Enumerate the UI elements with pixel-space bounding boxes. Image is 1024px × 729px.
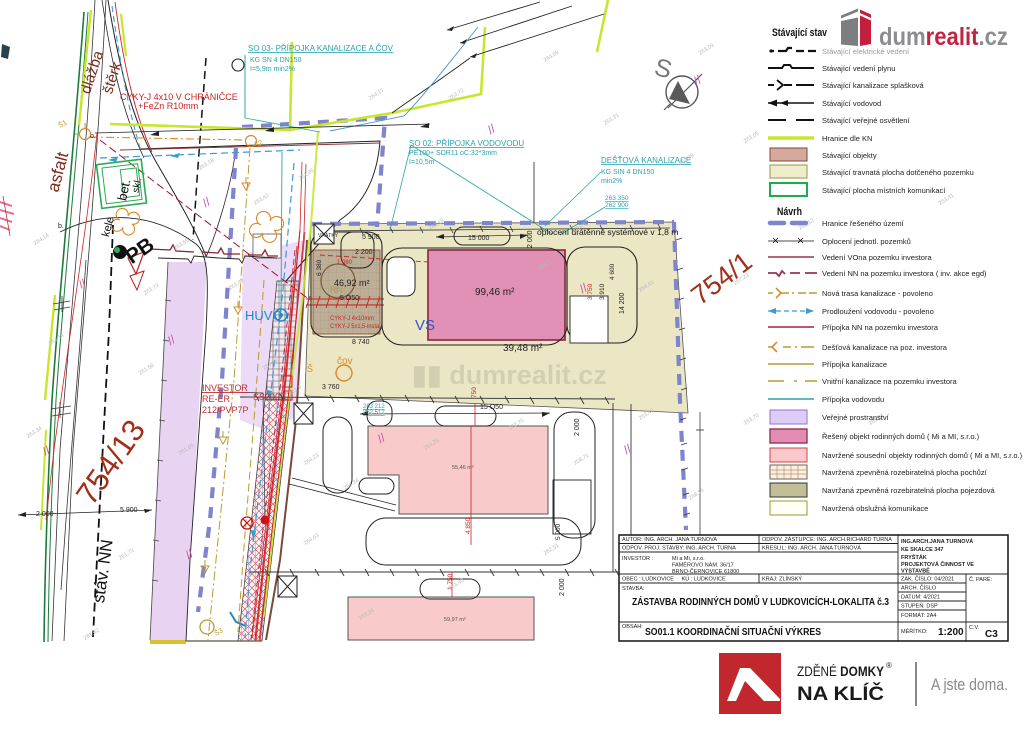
svg-text:RE-ER: RE-ER — [202, 394, 231, 404]
svg-text:dumrealit.cz: dumrealit.cz — [879, 23, 1008, 51]
svg-text:SS200: SS200 — [253, 392, 280, 402]
svg-text:99,46 m²: 99,46 m² — [475, 287, 515, 298]
svg-text:Č. PARÉ:: Č. PARÉ: — [969, 576, 993, 583]
svg-text:Nová trasa kanalizace - povole: Nová trasa kanalizace - povoleno — [822, 289, 933, 298]
svg-text:262 512: 262 512 — [363, 410, 385, 416]
svg-text:Mi a Mi, s.r.o.: Mi a Mi, s.r.o. — [672, 556, 705, 562]
svg-text:Přípojka NN na pozemku investo: Přípojka NN na pozemku investora — [822, 323, 939, 332]
svg-text:min2%: min2% — [601, 178, 622, 185]
svg-text:INVESTOR: INVESTOR — [202, 383, 248, 393]
svg-text:oplocení drátěnné systémové v: oplocení drátěnné systémové v 1,8 m — [537, 227, 678, 237]
svg-text:Stávající objekty: Stávající objekty — [822, 151, 877, 160]
svg-text:Oplocení jednotl. pozemků: Oplocení jednotl. pozemků — [822, 237, 911, 246]
svg-text:A jste doma.: A jste doma. — [931, 676, 1008, 694]
svg-text:ZDĚNÉ DOMKY: ZDĚNÉ DOMKY — [797, 664, 884, 679]
svg-text:Řešený objekt rodinných domů (: Řešený objekt rodinných domů ( Mi a MI, … — [822, 432, 980, 441]
svg-text:VÝSTAVBĚ: VÝSTAVBĚ — [901, 567, 930, 575]
svg-text:3 760: 3 760 — [322, 384, 340, 391]
svg-text:Stávající veřejné osvětlení: Stávající veřejné osvětlení — [822, 116, 910, 125]
svg-text:59,97 m²: 59,97 m² — [444, 617, 466, 623]
svg-text:čov: čov — [337, 356, 353, 367]
svg-text:ZAK. ČÍSLO: 04/2021: ZAK. ČÍSLO: 04/2021 — [901, 576, 954, 583]
svg-text:2 000: 2 000 — [559, 578, 566, 596]
svg-text:14 200: 14 200 — [619, 292, 626, 314]
svg-text:KE SKALCE 347: KE SKALCE 347 — [901, 547, 944, 553]
svg-text:Hranice řešeného území: Hranice řešeného území — [822, 219, 905, 228]
svg-text:ARCH. ČÍSLO: ARCH. ČÍSLO — [901, 585, 937, 592]
svg-text:15 O50: 15 O50 — [480, 404, 503, 411]
svg-text:DEŠŤOVÁ KANALIZACE: DEŠŤOVÁ KANALIZACE — [601, 156, 691, 165]
svg-text:ZÁSTAVBA RODINNÝCH DOMŮ V LUDK: ZÁSTAVBA RODINNÝCH DOMŮ V LUDKOVICÍCH-LO… — [632, 594, 889, 608]
svg-text:Návrh: Návrh — [777, 206, 802, 218]
svg-text:ING.ARCH.JANA TURNOVÁ: ING.ARCH.JANA TURNOVÁ — [901, 538, 973, 545]
svg-text:RN: RN — [330, 285, 343, 295]
svg-text:KRAJ: ZLÍNSKÝ: KRAJ: ZLÍNSKÝ — [762, 576, 802, 583]
svg-text:OBEC : LUDKOVICE KÚ : LUDK: OBEC : LUDKOVICE KÚ : LUDKOVICE — [622, 576, 726, 583]
svg-text:8 740: 8 740 — [352, 339, 370, 346]
svg-text:SO 03- PŘÍPOJKA KANALIZACE A Č: SO 03- PŘÍPOJKA KANALIZACE A ČOV — [248, 44, 394, 53]
svg-text:5 900: 5 900 — [120, 507, 138, 514]
svg-text:OBSAH:: OBSAH: — [622, 624, 643, 630]
svg-text:212/PVP7P: 212/PVP7P — [202, 405, 249, 415]
svg-text:2 000: 2 000 — [36, 511, 54, 518]
svg-text:Přípojka vodovodu: Přípojka vodovodu — [822, 395, 884, 404]
svg-text:750: 750 — [471, 387, 478, 398]
svg-text:I=10,5m: I=10,5m — [409, 159, 435, 166]
svg-text:Navržené sousední objekty ro: Navržené sousední objekty rodinných domů… — [822, 451, 1023, 460]
svg-text:55,46 m²: 55,46 m² — [452, 465, 474, 471]
svg-text:Navržená zpevněná rozebirateln: Navržená zpevněná rozebiratelná plocha p… — [822, 468, 988, 477]
svg-text:5 O50: 5 O50 — [340, 295, 359, 302]
svg-text:NA KLÍČ: NA KLÍČ — [797, 683, 884, 705]
svg-text:2 000: 2 000 — [574, 418, 581, 436]
svg-text:39,48 m²: 39,48 m² — [503, 343, 543, 354]
svg-text:5 900: 5 900 — [362, 234, 380, 241]
svg-text:HUVO: HUVO — [245, 308, 283, 323]
svg-text:Navržaná zpevněná rozebirateln: Navržaná zpevněná rozebiratelná plocha p… — [822, 486, 995, 495]
svg-text:b.: b. — [58, 223, 64, 230]
svg-text:263 350: 263 350 — [605, 195, 629, 202]
svg-text:Stávající travnatá plocha dotč: Stávající travnatá plocha dotčeného poze… — [822, 168, 974, 177]
svg-text:INVESTOR :: INVESTOR : — [622, 556, 654, 562]
svg-text:AUTOR: ING. ARCH. JANA TURNOVA: AUTOR: ING. ARCH. JANA TURNOVA — [622, 537, 717, 543]
svg-text:STAVBA:: STAVBA: — [622, 586, 645, 592]
svg-text:Š: Š — [307, 364, 313, 374]
svg-text:I=5,9m min2%: I=5,9m min2% — [250, 66, 295, 73]
svg-text:Stávající kanalizace splašková: Stávající kanalizace splašková — [822, 81, 925, 90]
svg-text:FORMÁT: 2A4: FORMÁT: 2A4 — [901, 612, 936, 619]
svg-text:C.V.: C.V. — [969, 625, 980, 631]
svg-text:®: ® — [886, 661, 892, 670]
svg-text:Navržená obslužná komunikace: Navržená obslužná komunikace — [822, 504, 928, 513]
svg-text:5 000: 5 000 — [555, 523, 562, 540]
svg-text:MĚŘÍTKO:: MĚŘÍTKO: — [901, 627, 928, 635]
svg-text:KG SIN 4 DN150: KG SIN 4 DN150 — [601, 169, 654, 176]
svg-text:FAMĚROVO NÁM. 36/17: FAMĚROVO NÁM. 36/17 — [672, 561, 734, 569]
svg-text:1 080: 1 080 — [337, 260, 353, 266]
svg-text:SO01.1 KOORDINAČNÍ SITUAČNÍ VÝ: SO01.1 KOORDINAČNÍ SITUAČNÍ VÝKRES — [645, 625, 821, 638]
svg-text:262 900: 262 900 — [605, 202, 629, 209]
svg-text:FRYŠTÁK: FRYŠTÁK — [901, 553, 927, 561]
svg-text:CYKY-J 5x1,5-instal.: CYKY-J 5x1,5-instal. — [330, 324, 382, 330]
svg-text:ODPOV. ZÁSTUPCE: ING. ARCH.RIC: ODPOV. ZÁSTUPCE: ING. ARCH.RICHARD TURNA — [762, 536, 892, 543]
svg-text:VS: VS — [415, 317, 435, 334]
svg-text:2 000: 2 000 — [527, 230, 534, 248]
svg-text:1:200: 1:200 — [938, 627, 964, 638]
svg-text:PE100+ SDR11 oC:32*3mm: PE100+ SDR11 oC:32*3mm — [409, 150, 497, 157]
svg-text:Vedení NN na pozemku investora: Vedení NN na pozemku investora ( inv. ak… — [822, 269, 987, 278]
svg-text:Stávající vedení plynu: Stávající vedení plynu — [822, 64, 895, 73]
svg-text:STUPEŇ: DSP: STUPEŇ: DSP — [901, 603, 938, 610]
svg-text:▮▮ dumrealit.cz: ▮▮ dumrealit.cz — [412, 360, 607, 390]
svg-text:6 380: 6 380 — [316, 259, 323, 276]
svg-text:Stávající vodovod: Stávající vodovod — [822, 99, 881, 108]
svg-text:3 910: 3 910 — [599, 283, 606, 300]
svg-text:15 000: 15 000 — [468, 235, 490, 242]
svg-text:Stávající stav: Stávající stav — [772, 27, 828, 39]
svg-text:Hranice dle KN: Hranice dle KN — [822, 134, 872, 143]
svg-text:PROJEKTOVÁ ČINNOST VE: PROJEKTOVÁ ČINNOST VE — [901, 561, 974, 568]
svg-text:KG SN 4 DN150: KG SN 4 DN150 — [250, 57, 301, 64]
svg-text:Veřejné prostranství: Veřejné prostranství — [822, 413, 890, 422]
svg-text:ODPOV. PROJ. STAVBY: ING. ARCH: ODPOV. PROJ. STAVBY: ING. ARCH. TURNA — [622, 546, 736, 552]
svg-text:Vnitřní kanalizace na pozemku: Vnitřní kanalizace na pozemku investora — [822, 377, 957, 386]
svg-text:Dešťová kanalizace na poz. inv: Dešťová kanalizace na poz. investora — [822, 343, 948, 352]
svg-text:4 600: 4 600 — [609, 263, 616, 280]
svg-text:Prodloužení vodovodu - povolen: Prodloužení vodovodu - povoleno — [822, 307, 934, 316]
svg-text:BRNO-ČERNOVICE 61800: BRNO-ČERNOVICE 61800 — [672, 568, 739, 575]
svg-text:2 200: 2 200 — [355, 249, 373, 256]
svg-text:KRESLIL: ING. ARCH. JANA TURNO: KRESLIL: ING. ARCH. JANA TURNOVÁ — [762, 545, 861, 552]
svg-text:Vedení VOna pozemku investora: Vedení VOna pozemku investora — [822, 253, 932, 262]
svg-text:4 850: 4 850 — [465, 517, 472, 534]
svg-text:SO 02: PŘÍPOJKA VODOVODU: SO 02: PŘÍPOJKA VODOVODU — [409, 139, 524, 148]
svg-text:Stávající plocha místních komu: Stávající plocha místních komunikací — [822, 186, 946, 195]
svg-text:C3: C3 — [985, 629, 998, 640]
svg-text:CYKY-J 4x10mm: CYKY-J 4x10mm — [330, 316, 374, 322]
svg-text:+FeZn R10mm: +FeZn R10mm — [138, 101, 198, 111]
svg-text:DATUM: 4/2021: DATUM: 4/2021 — [901, 595, 940, 601]
svg-text:VRÁTKY: VRÁTKY — [318, 232, 339, 239]
svg-text:Přípojka kanalizace: Přípojka kanalizace — [822, 360, 887, 369]
